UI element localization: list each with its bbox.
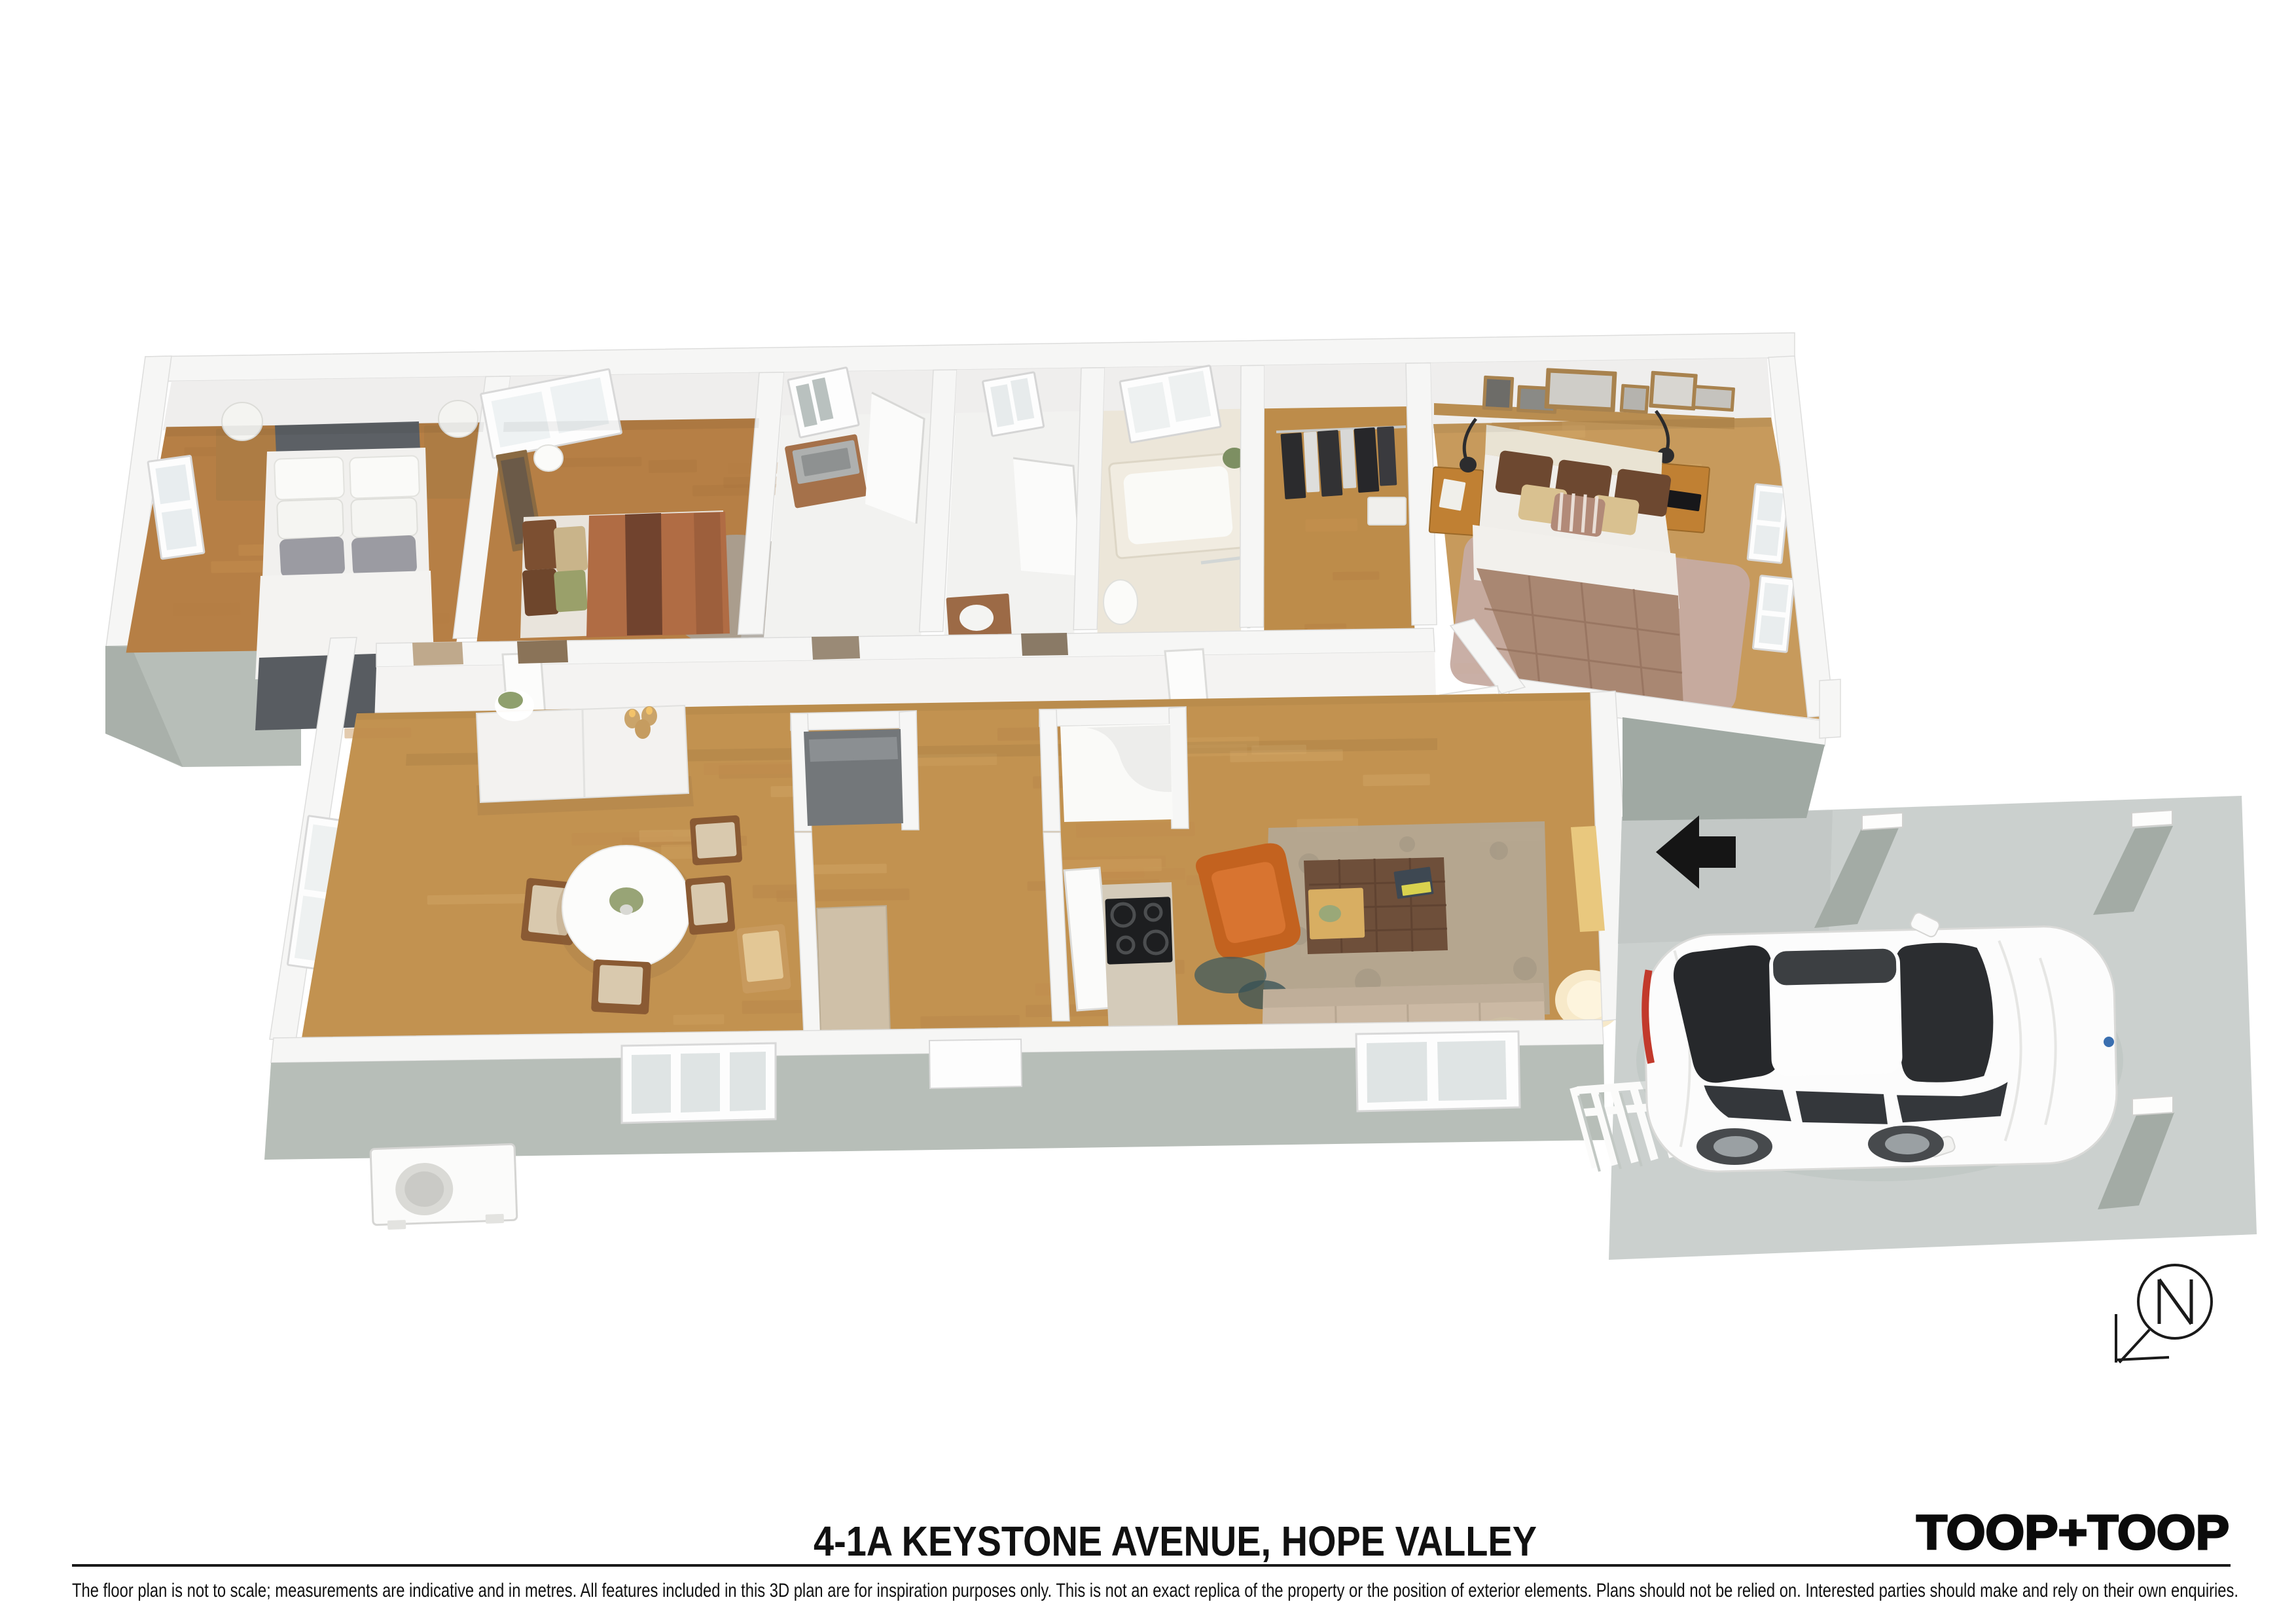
- svg-text:4-1A KEYSTONE AVENUE, HOPE VAL: 4-1A KEYSTONE AVENUE, HOPE VALLEY: [814, 1518, 1537, 1565]
- svg-text:The floor plan is not to scale: The floor plan is not to scale; measurem…: [72, 1580, 2238, 1601]
- svg-text:TOOP+TOOP: TOOP+TOOP: [1916, 1505, 2229, 1560]
